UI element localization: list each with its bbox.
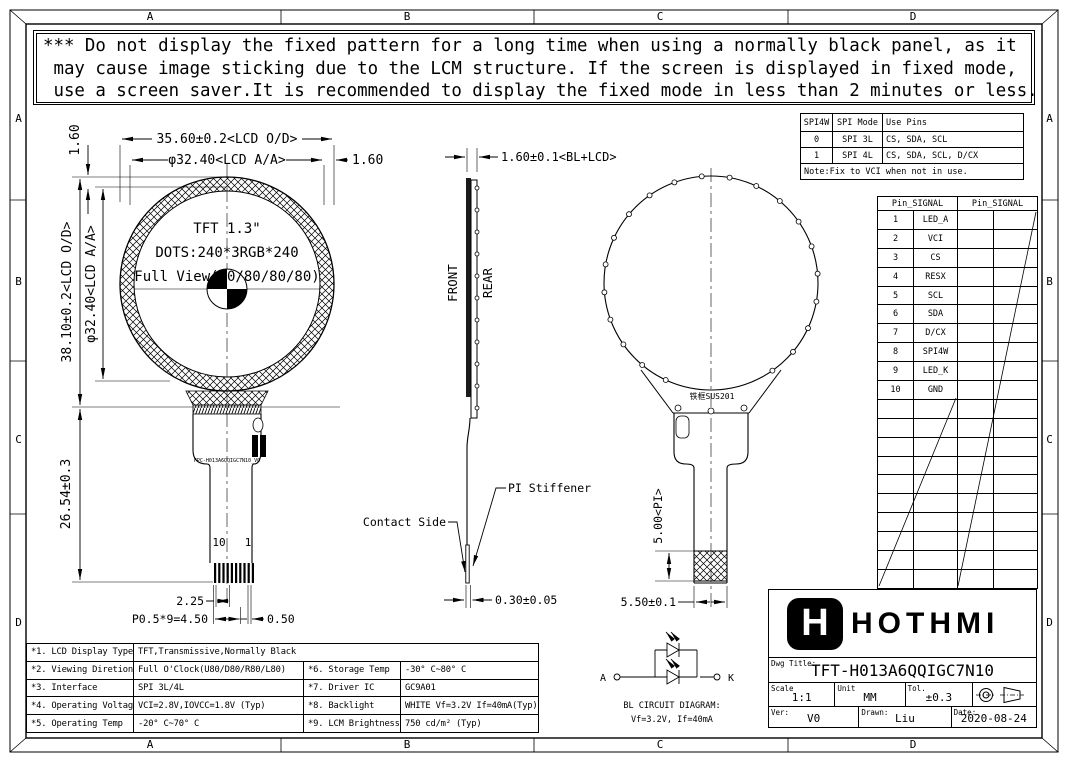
spec-value: VCI=2.8V,IOVCC=1.8V (Typ) (134, 697, 304, 715)
pin-row: 6SDA (878, 305, 1038, 324)
spec-row: *1. LCD Display Type TFT,Transmissive,No… (27, 644, 539, 662)
frame-row-label-left-a: A (11, 112, 26, 126)
spi-header-spi4w: SPI4W (801, 114, 833, 132)
pin-row: 4RESX (878, 267, 1038, 286)
pin-empty (994, 343, 1038, 362)
frame-row-label-right-d: D (1042, 616, 1057, 630)
pin-signal-table: Pin_SIGNAL Pin_SIGNAL 1LED_A 2VCI 3CS 4R… (877, 196, 1038, 589)
pin-empty (994, 229, 1038, 248)
dim-module-thickness: 1.60±0.1<BL+LCD> (501, 150, 617, 164)
pin-empty (958, 381, 994, 400)
spi-mode-table: SPI4W SPI Mode Use Pins 0 SPI 3L CS, SDA… (800, 113, 1024, 180)
spec-key: *6. Storage Temp (304, 661, 401, 679)
spec-value: Full O'Clock(U80/D80/R80/L80) (134, 661, 304, 679)
drawn-by-cell: Drawn: Liu (858, 707, 950, 727)
dim-top-gap: 1.60 (68, 124, 83, 155)
spec-key: *1. LCD Display Type (27, 644, 134, 662)
spec-value: GC9A01 (401, 679, 539, 697)
spec-key: *7. Driver IC (304, 679, 401, 697)
spec-value: TFT,Transmissive,Normally Black (134, 644, 539, 662)
pin-sig: D/CX (914, 324, 958, 343)
scale-value: 1:1 (769, 691, 834, 704)
front-view-drawing: TFT 1.3" DOTS:240*3RGB*240 Full View(80/… (59, 124, 383, 626)
dim-lcd-aa-width: φ32.40<LCD A/A> (168, 153, 286, 168)
pin-empty (994, 267, 1038, 286)
unit-cell: Unit MM (834, 683, 904, 706)
pin-empty (958, 305, 994, 324)
pin-number-one: 1 (245, 536, 252, 549)
spec-value: SPI 3L/4L (134, 679, 304, 697)
pin-empty-row (878, 437, 1038, 456)
version-value: V0 (769, 712, 858, 725)
pin-empty-row (878, 399, 1038, 418)
anode-label: A (600, 673, 606, 684)
pin-empty (958, 229, 994, 248)
warning-note-box: *** Do not display the fixed pattern for… (33, 30, 1035, 105)
pin-num: 6 (878, 305, 914, 324)
dim-right-gap: 1.60 (352, 153, 383, 168)
frame-col-label-bottom-a: A (110, 738, 190, 752)
drawn-by-value: Liu (859, 712, 950, 725)
pin-empty (994, 362, 1038, 381)
spec-row: *5. Operating Temp -20° C~70° C *9. LCM … (27, 715, 539, 733)
spec-row: *3. Interface SPI 3L/4L *7. Driver IC GC… (27, 679, 539, 697)
frame-col-label-bottom-c: C (620, 738, 700, 752)
spi-note-row: Note:Fix to VCI when not in use. (801, 164, 1024, 180)
logo-letter: H (801, 602, 828, 645)
frame-col-label-top-b: B (367, 10, 447, 24)
brand-name: HOTHMI (851, 607, 999, 641)
spec-key: *8. Backlight (304, 697, 401, 715)
date-cell: Date: 2020-08-24 (951, 707, 1036, 727)
fpc-marking-text: FPC-H013A6QQIGC7N10_V0 (194, 458, 260, 464)
spi-header-mode: SPI Mode (833, 114, 883, 132)
dim-lcd-aa-height: φ32.40<LCD A/A> (84, 225, 99, 343)
pin-signal-header-right: Pin_SIGNAL (958, 197, 1038, 211)
tolerance-value: ±0.3 (906, 691, 972, 704)
pin-row: 5SCL (878, 286, 1038, 305)
tolerance-cell: Tol. ±0.3 (905, 683, 972, 706)
pin-empty-row (878, 475, 1038, 494)
panel-size-label: TFT 1.3" (193, 221, 260, 237)
pin-empty (958, 324, 994, 343)
projection-angle-icon (974, 684, 1036, 706)
pin-signal-header-left: Pin_SIGNAL (878, 197, 958, 211)
pin-num: 8 (878, 343, 914, 362)
pin-sig: LED_K (914, 362, 958, 381)
version-cell: Ver: V0 (769, 707, 858, 727)
panel-dots-label: DOTS:240*3RGB*240 (155, 245, 298, 261)
frame-row-label-left-d: D (11, 616, 26, 630)
cathode-label: K (728, 673, 734, 684)
bl-circuit-caption: BL CIRCUIT DIAGRAM: (623, 701, 720, 711)
pin-num: 4 (878, 267, 914, 286)
frame-row-label-left-b: B (11, 275, 26, 289)
dim-tail-width: 5.50±0.1 (621, 595, 676, 609)
warning-line-2: may cause image sticking due to the LCM … (43, 58, 1031, 81)
pin-sig: VCI (914, 229, 958, 248)
spec-value: -20° C~70° C (134, 715, 304, 733)
unit-value: MM (835, 691, 904, 704)
logo-row: H HOTHMI (769, 590, 1036, 657)
pin-empty (958, 211, 994, 230)
spi-cell: CS, SDA, SCL (883, 132, 1024, 148)
pin-sig: CS (914, 248, 958, 267)
pin-empty-row (878, 456, 1038, 475)
backlight-circuit-diagram: A K BL CIRCUIT DIAGRAM: Vf=3.2V, If=40mA (600, 632, 734, 725)
pin-num: 3 (878, 248, 914, 267)
spi-cell: 1 (801, 148, 833, 164)
frame-row-label-right-a: A (1042, 112, 1057, 126)
pin-row: 9LED_K (878, 362, 1038, 381)
frame-row-label-left-c: C (11, 433, 26, 447)
warning-line-3: use a screen saver.It is recommended to … (43, 80, 1031, 103)
spec-value: -30° C~80° C (401, 661, 539, 679)
pin-row: 1LED_A (878, 211, 1038, 230)
pin-num: 1 (878, 211, 914, 230)
pin-sig: SPI4W (914, 343, 958, 362)
dwg-title-value: TFT-H013A6QQIGC7N10 (769, 661, 1036, 680)
frame-col-label-bottom-d: D (873, 738, 953, 752)
side-view-drawing: FRONT REAR 1.60±0.1<BL+LCD> Contact Side… (363, 148, 617, 608)
pin-empty (994, 305, 1038, 324)
dim-pin-pitch: P0.5*9=4.50 (132, 612, 208, 626)
pin-empty-row (878, 513, 1038, 532)
frame-col-label-top-a: A (110, 10, 190, 24)
panel-view-label: Full View(80/80/80/80) (134, 269, 319, 285)
pin-row: 7D/CX (878, 324, 1038, 343)
pin-empty (958, 343, 994, 362)
version-row: Ver: V0 Drawn: Liu Date: 2020-08-24 (769, 706, 1036, 727)
frame-row-label-right-c: C (1042, 433, 1057, 447)
spi-cell: SPI 4L (833, 148, 883, 164)
frame-col-label-top-d: D (873, 10, 953, 24)
title-block: H HOTHMI Dwg Title: TFT-H013A6QQIGC7N10 … (768, 589, 1037, 728)
contact-side-label: Contact Side (363, 515, 446, 529)
warning-line-1: *** Do not display the fixed pattern for… (43, 35, 1031, 58)
warning-note-text: *** Do not display the fixed pattern for… (36, 33, 1032, 103)
spec-row: *4. Operating Voltage VCI=2.8V,IOVCC=1.8… (27, 697, 539, 715)
pin-empty (994, 211, 1038, 230)
side-front-label: FRONT (445, 264, 460, 302)
pin-empty-row (878, 494, 1038, 513)
specification-table: *1. LCD Display Type TFT,Transmissive,No… (26, 643, 539, 733)
frame-col-label-bottom-b: B (367, 738, 447, 752)
spec-key: *2. Viewing Diretion (27, 661, 134, 679)
pin-empty (958, 248, 994, 267)
pin-empty-row (878, 551, 1038, 570)
dim-fpc-length: 26.54±0.3 (59, 459, 74, 529)
pin-num: 10 (878, 381, 914, 400)
dim-lcd-od-width: 35.60±0.2<LCD O/D> (157, 132, 298, 147)
spec-key: *9. LCM Brightness (304, 715, 401, 733)
spi-cell: CS, SDA, SCL, D/CX (883, 148, 1024, 164)
pin-sig: LED_A (914, 211, 958, 230)
spi-row-4line: 1 SPI 4L CS, SDA, SCL, D/CX (801, 148, 1024, 164)
pin-empty (958, 362, 994, 381)
pin-num: 7 (878, 324, 914, 343)
pin-empty-row (878, 569, 1038, 588)
dim-pi-stiffener-length: 5.00<PI> (651, 488, 665, 543)
pin-sig: RESX (914, 267, 958, 286)
spec-key: *3. Interface (27, 679, 134, 697)
engineering-drawing-sheet: TFT 1.3" DOTS:240*3RGB*240 Full View(80/… (0, 0, 1068, 761)
frame-row-label-right-b: B (1042, 275, 1057, 289)
spec-row: *2. Viewing Diretion Full O'Clock(U80/D8… (27, 661, 539, 679)
pi-stiffener-label: PI Stiffener (508, 481, 591, 495)
side-rear-label: REAR (480, 267, 495, 298)
dim-fpc-thickness: 0.30±0.05 (495, 593, 557, 607)
pin-num: 2 (878, 229, 914, 248)
hothmi-logo-icon: H (787, 598, 843, 650)
spi-cell: 0 (801, 132, 833, 148)
pin-sig: SCL (914, 286, 958, 305)
fpc-pins (214, 563, 254, 583)
spec-key: *5. Operating Temp (27, 715, 134, 733)
spi-row-3line: 0 SPI 3L CS, SDA, SCL (801, 132, 1024, 148)
pin-sig: SDA (914, 305, 958, 324)
pin-row: 10GND (878, 381, 1038, 400)
pin-empty (994, 381, 1038, 400)
spec-key: *4. Operating Voltage (27, 697, 134, 715)
pin-sig: GND (914, 381, 958, 400)
projection-symbol-cell (972, 683, 1036, 706)
pin-table-header-row: Pin_SIGNAL Pin_SIGNAL (878, 197, 1038, 211)
pin-row: 2VCI (878, 229, 1038, 248)
pin-empty-row (878, 418, 1038, 437)
dim-pin-offset: 2.25 (176, 594, 204, 608)
metal-frame-label: 铁框SUS201 (690, 391, 735, 401)
pin-empty (994, 324, 1038, 343)
rear-view-drawing: 铁框SUS201 5.00<PI> 5.50±0.1 (602, 168, 820, 609)
pin-num: 9 (878, 362, 914, 381)
scale-cell: Scale 1:1 (769, 683, 834, 706)
pin-row: 3CS (878, 248, 1038, 267)
pin-number-ten: 10 (212, 536, 225, 549)
spi-note: Note:Fix to VCI when not in use. (801, 164, 1024, 180)
pin-empty (958, 267, 994, 286)
dim-lcd-od-height: 38.10±0.2<LCD O/D> (60, 221, 75, 362)
pin-empty (958, 286, 994, 305)
dim-pin-width: 0.50 (267, 612, 295, 626)
scale-unit-tol-row: Scale 1:1 Unit MM Tol. ±0.3 (769, 682, 1036, 706)
dwg-title-row: Dwg Title: TFT-H013A6QQIGC7N10 (769, 657, 1036, 682)
pin-row: 8SPI4W (878, 343, 1038, 362)
date-value: 2020-08-24 (952, 712, 1036, 725)
bl-circuit-values: Vf=3.2V, If=40mA (631, 715, 713, 725)
spi-header-pins: Use Pins (883, 114, 1024, 132)
spec-value: 750 cd/m² (Typ) (401, 715, 539, 733)
pin-empty (994, 248, 1038, 267)
pin-empty-row (878, 532, 1038, 551)
spi-cell: SPI 3L (833, 132, 883, 148)
pin-empty (994, 286, 1038, 305)
frame-col-label-top-c: C (620, 10, 700, 24)
pin-num: 5 (878, 286, 914, 305)
spec-value: WHITE Vf=3.2V If=40mA(Typ) (401, 697, 539, 715)
spi-header-row: SPI4W SPI Mode Use Pins (801, 114, 1024, 132)
